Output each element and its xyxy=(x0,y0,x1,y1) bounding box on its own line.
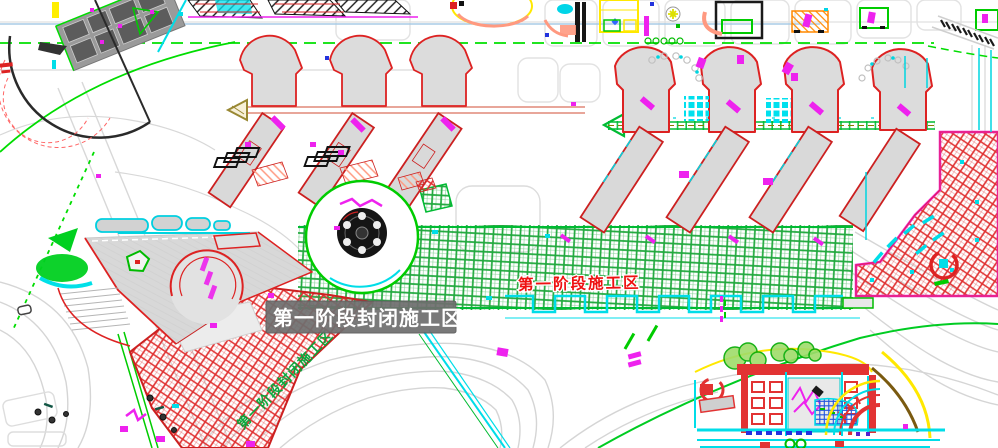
green-landscape xyxy=(17,228,92,315)
section-cut-lines xyxy=(419,330,510,448)
green-outline-parcel xyxy=(843,298,873,308)
site-plan-canvas[interactable]: 第一阶段封闭施工区 第一阶段施工区 第一阶段封闭施工区 xyxy=(0,0,998,448)
cyan-grid-block xyxy=(684,96,709,121)
closed-zone-label: 第一阶段封闭施工区 xyxy=(266,301,462,333)
amphitheater-steps xyxy=(60,288,130,330)
flower-icon xyxy=(666,7,680,28)
roof-pods xyxy=(96,216,230,232)
phase-zone-annotation: 第一阶段施工区 xyxy=(518,273,641,294)
phase-zone-text: 第一阶段施工区 xyxy=(518,273,641,294)
yellow-bar xyxy=(52,2,59,18)
roundabout-feature xyxy=(306,181,418,293)
top-hatched-structures xyxy=(188,0,418,18)
buildings-top-center xyxy=(209,36,472,210)
site-plan-drawing: 第一阶段封闭施工区 第一阶段施工区 第一阶段封闭施工区 xyxy=(0,0,998,448)
dotted-arc-deco xyxy=(649,53,909,81)
cyan-grid-block xyxy=(766,98,791,123)
kindergarten-complex xyxy=(695,342,945,448)
closed-zone-label-text: 第一阶段封闭施工区 xyxy=(273,306,462,330)
green-dash-markers xyxy=(624,325,659,350)
crosswalk xyxy=(932,16,998,49)
